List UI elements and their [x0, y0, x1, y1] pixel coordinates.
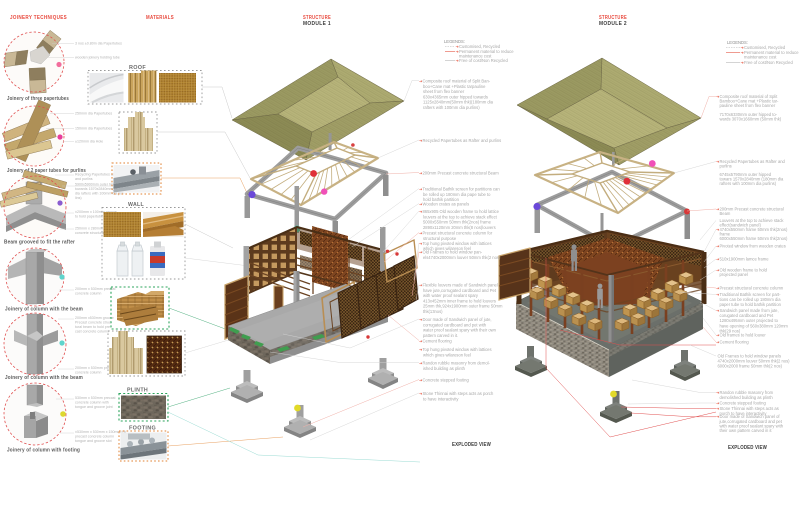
- svg-text:Beam: Beam: [720, 211, 731, 216]
- svg-text:6000x2000 frame 50mm thk(2 nos: 6000x2000 frame 50mm thk(2 nos): [718, 364, 783, 369]
- svg-text:➜Top hung pivoted window with: ➜Top hung pivoted window with lattices: [419, 241, 492, 246]
- svg-text:Precast concrete struc-: Precast concrete struc-: [75, 321, 113, 325]
- svg-text:➜Door made of Sandwich panel o: ➜Door made of Sandwich panel of jute,: [419, 317, 492, 322]
- svg-text:wards 3070x1660mm (50mm thk): wards 3070x1660mm (50mm thk): [720, 117, 782, 122]
- svg-text:have jute,corrugated cardboard: have jute,corrugated cardboard and Pet: [423, 288, 497, 293]
- svg-text:concrete column with: concrete column with: [75, 401, 109, 405]
- svg-text:with water proof sealant spary: with water proof sealant spary: [423, 293, 479, 298]
- svg-text:➜Composite roof material of Sp: ➜Composite roof material of Split Ban-: [419, 79, 491, 84]
- svg-text:rafters with 100mm dia purlins: rafters with 100mm dia purlins): [423, 105, 480, 110]
- svg-text:tongue and groove slot: tongue and groove slot: [75, 439, 112, 443]
- svg-text:lins): lins): [75, 196, 82, 200]
- svg-text:➜Pivoted window from wooden cr: ➜Pivoted window from wooden crates: [716, 244, 786, 249]
- svg-text:maintenance cost: maintenance cost: [744, 54, 777, 59]
- svg-text:tural beam to hold pre-: tural beam to hold pre-: [75, 325, 112, 329]
- svg-text:which gives wilareson feel: which gives wilareson feel: [423, 352, 471, 357]
- svg-text:200mm x 530mm precast: 200mm x 530mm precast: [75, 287, 116, 291]
- svg-text:MODULE 1: MODULE 1: [303, 21, 331, 27]
- svg-text:5900x5900mm outer hipped: 5900x5900mm outer hipped: [75, 183, 120, 187]
- svg-text:Joinery of column with the bea: Joinery of column with the beam: [5, 307, 83, 313]
- svg-text:150mm dia Papertubes: 150mm dia Papertubes: [75, 127, 112, 131]
- svg-text:concrete column: concrete column: [75, 292, 101, 296]
- svg-text:rafters with 100mm dia purlins: rafters with 100mm dia purlins): [720, 181, 777, 186]
- svg-text:530mm x 530mm precast: 530mm x 530mm precast: [75, 396, 116, 400]
- svg-text:➜Traditional Bathik screen for: ➜Traditional Bathik screen for partition…: [419, 187, 500, 192]
- svg-text:to have interactivity: to have interactivity: [423, 396, 459, 401]
- svg-text:➜Free of cost/Non Recycled: ➜Free of cost/Non Recycled: [456, 58, 509, 63]
- svg-text:6000x550mm frame 50mm thk(2nos: 6000x550mm frame 50mm thk(2nos): [720, 236, 789, 241]
- svg-text:paper tube to hold bathik part: paper tube to hold bathik partition: [720, 302, 782, 307]
- svg-text:Joinery of column with the bea: Joinery of column with the beam: [5, 375, 83, 381]
- svg-text:ished building as plinth: ished building as plinth: [423, 366, 466, 371]
- svg-text:➜Concrete stepped footing: ➜Concrete stepped footing: [716, 401, 766, 406]
- svg-text:EXPLODED VIEW: EXPLODED VIEW: [728, 445, 768, 451]
- svg-text:630x4365mm outer hipped toward: 630x4365mm outer hipped towards: [423, 94, 488, 99]
- svg-text:Joinery of column with footing: Joinery of column with footing: [7, 448, 80, 454]
- svg-text:els4740x2000mm louver 50mm thk: els4740x2000mm louver 50mm thk(2 nos): [423, 255, 501, 260]
- svg-text:➜510x1900mm lamce frame: ➜510x1900mm lamce frame: [716, 257, 769, 262]
- svg-text:be rolled up 180mm dia pape tu: be rolled up 180mm dia pape tube to: [423, 192, 491, 197]
- svg-text:➜Old frames to hold louver: ➜Old frames to hold louver: [716, 333, 766, 338]
- svg-text:JOINERY TECHNIQUES: JOINERY TECHNIQUES: [10, 15, 67, 21]
- svg-text:precast concrete column: precast concrete column: [75, 435, 114, 439]
- svg-text:2890x1120mm 20mm thk(8 nos)lou: 2890x1120mm 20mm thk(8 nos)louvers: [423, 225, 496, 230]
- svg-text:3 nos ±0.80m dia Papertubes: 3 nos ±0.80m dia Papertubes: [75, 42, 122, 46]
- svg-text:tongue and groove joint: tongue and groove joint: [75, 405, 113, 409]
- svg-text:purlins: purlins: [720, 164, 732, 169]
- svg-text:and purlins: and purlins: [75, 177, 93, 181]
- svg-text:wooden joinery holding tube: wooden joinery holding tube: [75, 56, 120, 60]
- svg-text:250mm dia Papertubes: 250mm dia Papertubes: [75, 112, 112, 116]
- svg-text:➜Randon rubble masonry from de: ➜Randon rubble masonry from demol-: [419, 361, 491, 366]
- svg-text:413x452mm inner frame to hold: 413x452mm inner frame to hold louvers: [423, 298, 496, 303]
- svg-text:PLINTH: PLINTH: [127, 388, 148, 394]
- svg-text:pattern carved in it.: pattern carved in it.: [423, 333, 458, 338]
- svg-text:➜Recycled Papertubes as Rafter: ➜Recycled Papertubes as Rafter and purli…: [419, 138, 501, 143]
- svg-text:thk(13nos): thk(13nos): [423, 309, 443, 314]
- svg-text:➜Precast structural concrete c: ➜Precast structural concrete column for: [419, 231, 493, 236]
- svg-text:➜Old Frames to hold window pan: ➜Old Frames to hold window pan-: [419, 250, 483, 255]
- svg-text:➜Stone Thinnai with steps acts: ➜Stone Thinnai with steps acts as porch: [419, 391, 494, 396]
- svg-text:±120mm dia Hole: ±120mm dia Hole: [75, 140, 103, 144]
- svg-text:➜Cement flooring: ➜Cement flooring: [419, 339, 452, 344]
- svg-text:pauline sheet from flex banner: pauline sheet from flex banner: [720, 103, 776, 108]
- svg-text:concrete column: concrete column: [75, 371, 101, 375]
- svg-text:25mm thk,924x1900mm outer fram: 25mm thk,924x1900mm outer frame 50mm: [423, 304, 503, 309]
- svg-text:➜200mm Precast concrete struct: ➜200mm Precast concrete structural Beam: [419, 171, 499, 176]
- svg-text:➜Concrete stepped footing: ➜Concrete stepped footing: [419, 378, 469, 383]
- svg-text:➜865x905 Old wooden frame to h: ➜865x905 Old wooden frame to hold lattic…: [419, 209, 500, 214]
- svg-text:louvers at the top to achieve: louvers at the top to achieve stack effe…: [423, 214, 498, 219]
- svg-text:➜Precast structural concrete c: ➜Precast structural concrete column: [716, 286, 784, 291]
- svg-text:➜Wooden crates as panels: ➜Wooden crates as panels: [419, 202, 469, 207]
- svg-text:MODULE 2: MODULE 2: [599, 21, 627, 27]
- svg-text:MATERIALS: MATERIALS: [146, 15, 174, 21]
- svg-text:projected panel: projected panel: [720, 272, 748, 277]
- svg-text:cast concrete column: cast concrete column: [75, 330, 109, 334]
- svg-text:➜Free of cost/Non Recycled: ➜Free of cost/Non Recycled: [741, 60, 794, 65]
- svg-text:1125x2840mm(50mm thk)(180mm di: 1125x2840mm(50mm thk)(180mm dia: [423, 100, 494, 105]
- svg-text:EXPLODED VIEW: EXPLODED VIEW: [452, 442, 492, 448]
- svg-text:their own pattern carved in it: their own pattern carved in it: [720, 428, 773, 433]
- svg-text:5000x550mm 50mm thk(2nos) fram: 5000x550mm 50mm thk(2nos) frame: [423, 220, 492, 225]
- svg-text:boo+Cane mat +Plastic tarpauli: boo+Cane mat +Plastic tarpauline: [423, 84, 486, 89]
- svg-text:demolished building as plinth: demolished building as plinth: [720, 395, 774, 400]
- svg-text:➜Cement flooring: ➜Cement flooring: [716, 340, 749, 345]
- svg-text:200mm x530mm groove: 200mm x530mm groove: [75, 316, 114, 320]
- svg-text:corrugated cardboard and pet w: corrugated cardboard and pet with: [423, 322, 487, 327]
- svg-text:➜Flexible louvers made of Sand: ➜Flexible louvers made of Sandwich panel: [419, 283, 498, 288]
- svg-text:Beam grooved to fit the rafter: Beam grooved to fit the rafter: [4, 240, 76, 246]
- svg-text:➜Top hung pivoted window with: ➜Top hung pivoted window with lattices: [419, 347, 492, 352]
- svg-text:sheet from flex banner: sheet from flex banner: [423, 89, 465, 94]
- svg-text:water proof sealant spary with: water proof sealant spary with their own: [423, 328, 497, 333]
